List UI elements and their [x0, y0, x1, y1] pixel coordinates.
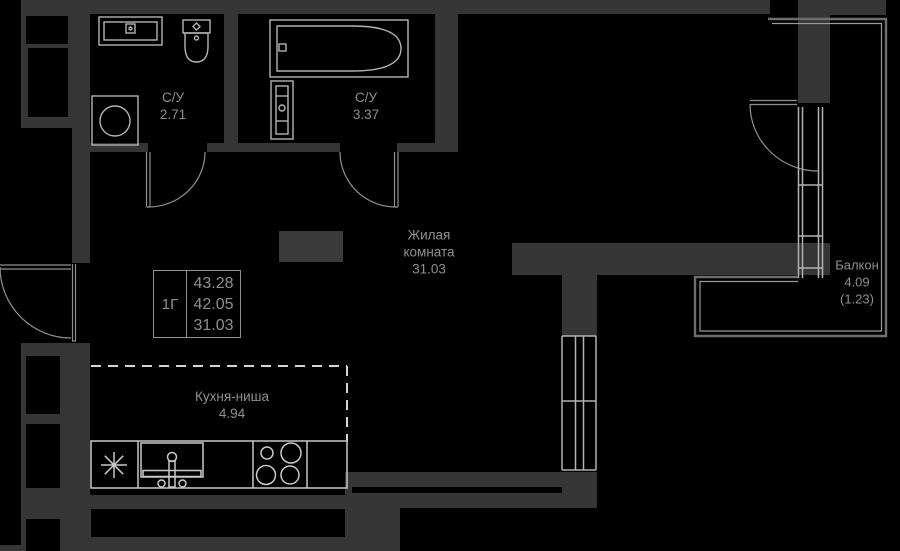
wall-bath-front-3 — [397, 143, 458, 152]
living-room-window — [562, 336, 596, 470]
wall-niche — [26, 519, 60, 551]
floor-plan: С/У 2.71 С/У 3.37 Жилая комната 31.03 Ку… — [0, 0, 900, 551]
balcony-door — [750, 101, 818, 172]
wall-top — [21, 0, 770, 14]
room-name: Балкон — [835, 257, 879, 274]
room-label-balcony: Балкон 4.09 (1.23) — [835, 257, 879, 308]
wall-niche — [28, 48, 68, 117]
window-slot-bottom — [352, 487, 562, 493]
bath2-door — [340, 152, 398, 207]
wall-bath2-right — [435, 14, 458, 152]
room-area: 31.03 — [403, 261, 454, 278]
wall-right-pier — [562, 243, 597, 336]
room-name: комната — [403, 244, 454, 261]
wall-left-mid — [72, 14, 90, 263]
wall-bath-divider — [224, 14, 238, 152]
reduced-area: 42.05 — [187, 294, 240, 315]
bath2-door-arc — [340, 152, 396, 207]
entry-door-arc — [0, 267, 71, 338]
water-riser-icon — [271, 81, 293, 139]
window-recess-bottom-left — [91, 509, 345, 537]
washing-machine-icon — [92, 96, 138, 145]
room-label-bathroom-2: С/У 3.37 — [353, 89, 379, 123]
wall-balcony-left — [798, 0, 830, 103]
room-label-kitchen-niche: Кухня-ниша 4.94 — [195, 388, 269, 422]
room-area: 3.37 — [353, 106, 379, 123]
room-area: 2.71 — [160, 106, 186, 123]
wall-niche — [26, 16, 68, 44]
room-label-living-room: Жилая комната 31.03 — [403, 227, 454, 278]
unit-type: 1Г — [154, 271, 187, 337]
bathtub-icon — [270, 20, 408, 77]
kitchen-sink-icon — [141, 443, 203, 487]
stove-burners-icon — [257, 443, 302, 485]
unit-areas: 43.28 42.05 31.03 — [187, 271, 240, 337]
fridge-icon — [101, 452, 127, 478]
room-name: Жилая — [403, 227, 454, 244]
bath1-door-arc — [148, 152, 205, 207]
wall-niche — [26, 424, 60, 488]
bath1-door — [147, 152, 206, 207]
room-name: С/У — [160, 89, 186, 106]
wall-niche — [26, 356, 60, 414]
room-area-secondary: (1.23) — [835, 291, 879, 308]
toilet-icon — [183, 20, 210, 62]
total-area: 43.28 — [187, 273, 240, 294]
wall-living-right-horizontal — [512, 243, 830, 275]
vanity-sink-icon — [99, 17, 162, 45]
kitchen-counter — [91, 441, 347, 488]
entry-door — [0, 264, 76, 341]
balcony-door-arc — [750, 104, 818, 171]
vent-shaft — [279, 231, 343, 262]
room-name: С/У — [353, 89, 379, 106]
room-name: Кухня-ниша — [195, 388, 269, 405]
room-label-bathroom-1: С/У 2.71 — [160, 89, 186, 123]
room-area: 4.94 — [195, 405, 269, 422]
wall-top-right-stub — [829, 0, 886, 15]
apartment-info-table: 1Г 43.28 42.05 31.03 — [153, 270, 241, 338]
room-area: 4.09 — [835, 274, 879, 291]
living-area: 31.03 — [187, 315, 240, 336]
wall-bath-front-2 — [207, 143, 340, 152]
